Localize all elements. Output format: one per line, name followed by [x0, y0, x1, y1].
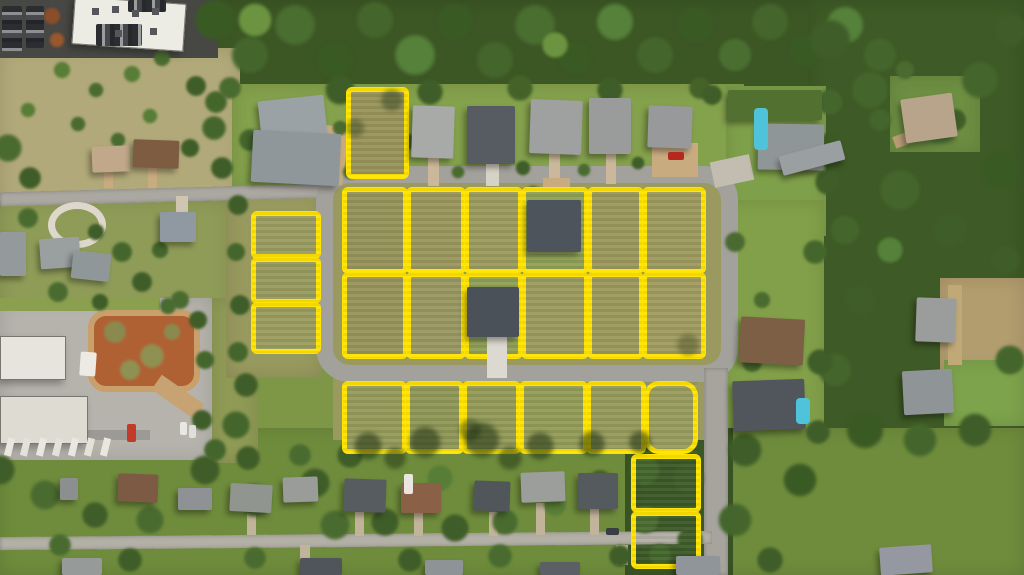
west-house: [71, 250, 112, 282]
tree: [717, 37, 753, 73]
lot-c8: [407, 273, 465, 358]
tree: [756, 546, 784, 574]
tree: [994, 344, 1024, 376]
rooftop-hvac-unit: [132, 10, 139, 17]
tree: [151, 241, 169, 259]
bottom-house: [343, 478, 386, 512]
lot-b2: [252, 258, 320, 303]
tree: [878, 168, 922, 212]
tree: [440, 513, 470, 543]
tree: [635, 35, 675, 75]
tree-shadow: [353, 431, 383, 461]
tree: [201, 115, 227, 141]
bottom-house: [178, 488, 212, 510]
aerial-photo: [0, 0, 1024, 575]
tree: [491, 508, 519, 536]
tree: [717, 502, 753, 538]
tree: [541, 31, 569, 59]
tree-shadow: [578, 430, 606, 458]
pool-estate-garden: [728, 90, 822, 120]
lot-b3: [252, 303, 320, 353]
tree: [808, 18, 852, 62]
tree-shadow: [458, 418, 482, 442]
east-road: [704, 368, 728, 575]
mansion-roof-wing: [251, 130, 342, 187]
red-truck: [127, 424, 136, 442]
tree: [902, 422, 938, 458]
tree: [989, 244, 1021, 276]
tree-shadow: [628, 430, 652, 454]
east-house: [732, 379, 806, 431]
tree: [185, 75, 207, 97]
red-car: [668, 152, 684, 160]
white-car: [189, 425, 196, 438]
tree: [131, 271, 153, 293]
tree: [802, 239, 828, 265]
tree: [814, 168, 842, 196]
tree: [782, 462, 818, 498]
lot-c2: [407, 188, 465, 273]
lot-b1: [252, 212, 320, 258]
lot-c6: [643, 188, 705, 273]
tree: [876, 236, 904, 264]
tree: [829, 214, 861, 246]
tree: [163, 323, 181, 341]
bottom-house: [473, 480, 510, 511]
estate-driveway: [606, 150, 616, 184]
tree: [135, 505, 165, 535]
tree: [221, 410, 251, 440]
parked-car-row: [26, 6, 44, 48]
estate-driveway: [428, 158, 439, 186]
bottom-house: [118, 473, 159, 502]
lot-c7: [343, 273, 407, 358]
tree-shadow: [380, 88, 404, 112]
bottom-house: [676, 556, 720, 575]
white-car: [180, 422, 187, 435]
house-driveway: [355, 512, 364, 536]
tree: [88, 82, 104, 98]
tree: [393, 33, 437, 77]
tree: [43, 7, 61, 25]
tree: [515, 160, 531, 176]
tree: [233, 372, 259, 398]
lot-c10: [522, 273, 588, 358]
lot-c5: [588, 188, 643, 273]
estate-house: [647, 105, 692, 149]
tree-shadow: [383, 446, 407, 470]
tree: [18, 166, 42, 190]
rooftop-hvac-unit: [152, 8, 159, 15]
bottom-house: [283, 476, 319, 502]
tree: [451, 165, 465, 179]
tree: [203, 438, 227, 462]
swimming-pool: [796, 398, 810, 424]
tree: [142, 108, 158, 124]
estate-house: [467, 106, 515, 164]
house-driveway: [590, 508, 599, 535]
tree: [701, 84, 723, 106]
tree: [980, 150, 1020, 190]
bottom-house: [60, 478, 78, 500]
tree: [20, 102, 36, 118]
tree: [842, 282, 878, 318]
warehouse-2: [0, 396, 88, 444]
lot-c1: [343, 188, 407, 273]
rooftop-hvac-unit: [92, 8, 99, 15]
rooftop-hvac-unit: [115, 30, 122, 37]
lot-d6: [645, 382, 697, 453]
tree: [53, 61, 71, 79]
tree: [49, 32, 65, 48]
tree-shadow: [525, 431, 555, 461]
bottom-house: [62, 558, 102, 575]
tree: [243, 546, 267, 570]
tree: [487, 543, 513, 569]
tree: [845, 410, 885, 450]
estate-house: [529, 99, 583, 155]
tree: [119, 359, 141, 381]
tree: [229, 294, 251, 316]
lot-c3: [465, 188, 522, 273]
tree-shadow: [345, 118, 365, 138]
forest-house-se: [879, 544, 933, 575]
tree-shadow: [676, 333, 700, 357]
tree: [273, 3, 317, 47]
tree: [416, 78, 444, 106]
tree: [180, 138, 200, 158]
grid-home2-concrete-drive: [487, 330, 507, 378]
tree: [595, 2, 635, 42]
tree: [226, 242, 246, 262]
tree: [475, 40, 515, 80]
east-house: [739, 316, 805, 365]
forest-house-ne: [900, 93, 958, 144]
lot-c11: [588, 273, 643, 358]
tree: [47, 281, 69, 303]
west-house: [0, 232, 26, 276]
estate-driveway: [486, 162, 499, 186]
tree: [960, 60, 1000, 100]
tree: [227, 194, 249, 216]
tree: [895, 60, 915, 80]
tree: [210, 156, 234, 180]
tree: [806, 348, 834, 376]
tree: [17, 207, 39, 229]
lot-e1-wooded: [632, 455, 700, 512]
estate-house: [411, 105, 455, 158]
tree: [230, 35, 270, 75]
tree-shadow: [497, 445, 523, 471]
tree: [70, 116, 86, 132]
tree: [235, 445, 261, 471]
white-truck: [79, 351, 97, 376]
tree: [753, 291, 771, 309]
tree: [608, 544, 632, 568]
grid-home-1: [527, 200, 581, 252]
bottom-house: [578, 473, 618, 509]
tree: [48, 533, 72, 557]
tree: [319, 509, 351, 541]
tree: [631, 156, 645, 170]
house-driveway: [414, 512, 423, 536]
dark-car: [606, 528, 619, 535]
white-rv: [404, 474, 413, 494]
tree: [724, 231, 746, 253]
bottom-house: [540, 562, 580, 575]
swimming-pool: [754, 108, 768, 150]
estate-house: [589, 98, 631, 154]
tree: [992, 12, 1024, 48]
tree: [288, 443, 312, 467]
west-house: [92, 145, 131, 172]
tree: [139, 343, 165, 369]
tree: [218, 76, 242, 100]
west-house: [133, 139, 180, 169]
rooftop-hvac-unit: [150, 28, 157, 35]
bottom-house: [425, 560, 463, 575]
tree: [577, 163, 591, 177]
warehouse-1: [0, 336, 66, 380]
tree: [91, 293, 109, 311]
bottom-house: [520, 471, 565, 503]
tree: [103, 320, 127, 344]
tree: [193, 0, 237, 42]
east-house: [915, 297, 957, 342]
tree: [850, 70, 890, 110]
tree: [750, 2, 790, 42]
rooftop-hvac-unit: [112, 6, 119, 13]
tree: [81, 501, 109, 529]
west-house: [160, 212, 196, 242]
tree: [805, 419, 831, 445]
tree: [868, 108, 892, 132]
tree: [188, 310, 208, 330]
tree: [862, 37, 898, 73]
tree: [159, 297, 177, 315]
tree: [111, 241, 133, 263]
tree: [435, 2, 475, 42]
tree: [237, 2, 273, 38]
tree: [87, 223, 105, 241]
tree: [355, 0, 395, 40]
bottom-house: [300, 558, 342, 575]
tree: [227, 341, 249, 363]
tree: [506, 74, 534, 102]
tree: [153, 49, 171, 67]
tree: [675, 5, 715, 45]
east-house: [902, 369, 954, 416]
tree: [117, 547, 143, 573]
tree: [29, 479, 61, 511]
parked-car-row: [2, 6, 22, 52]
tree: [957, 412, 993, 448]
bottom-house: [229, 483, 272, 513]
tree: [397, 547, 423, 573]
tree: [930, 210, 970, 250]
grid-home-2: [467, 287, 519, 337]
tree: [123, 65, 141, 83]
tree: [727, 432, 763, 468]
tree: [195, 350, 215, 370]
tree-shadow: [408, 425, 442, 459]
